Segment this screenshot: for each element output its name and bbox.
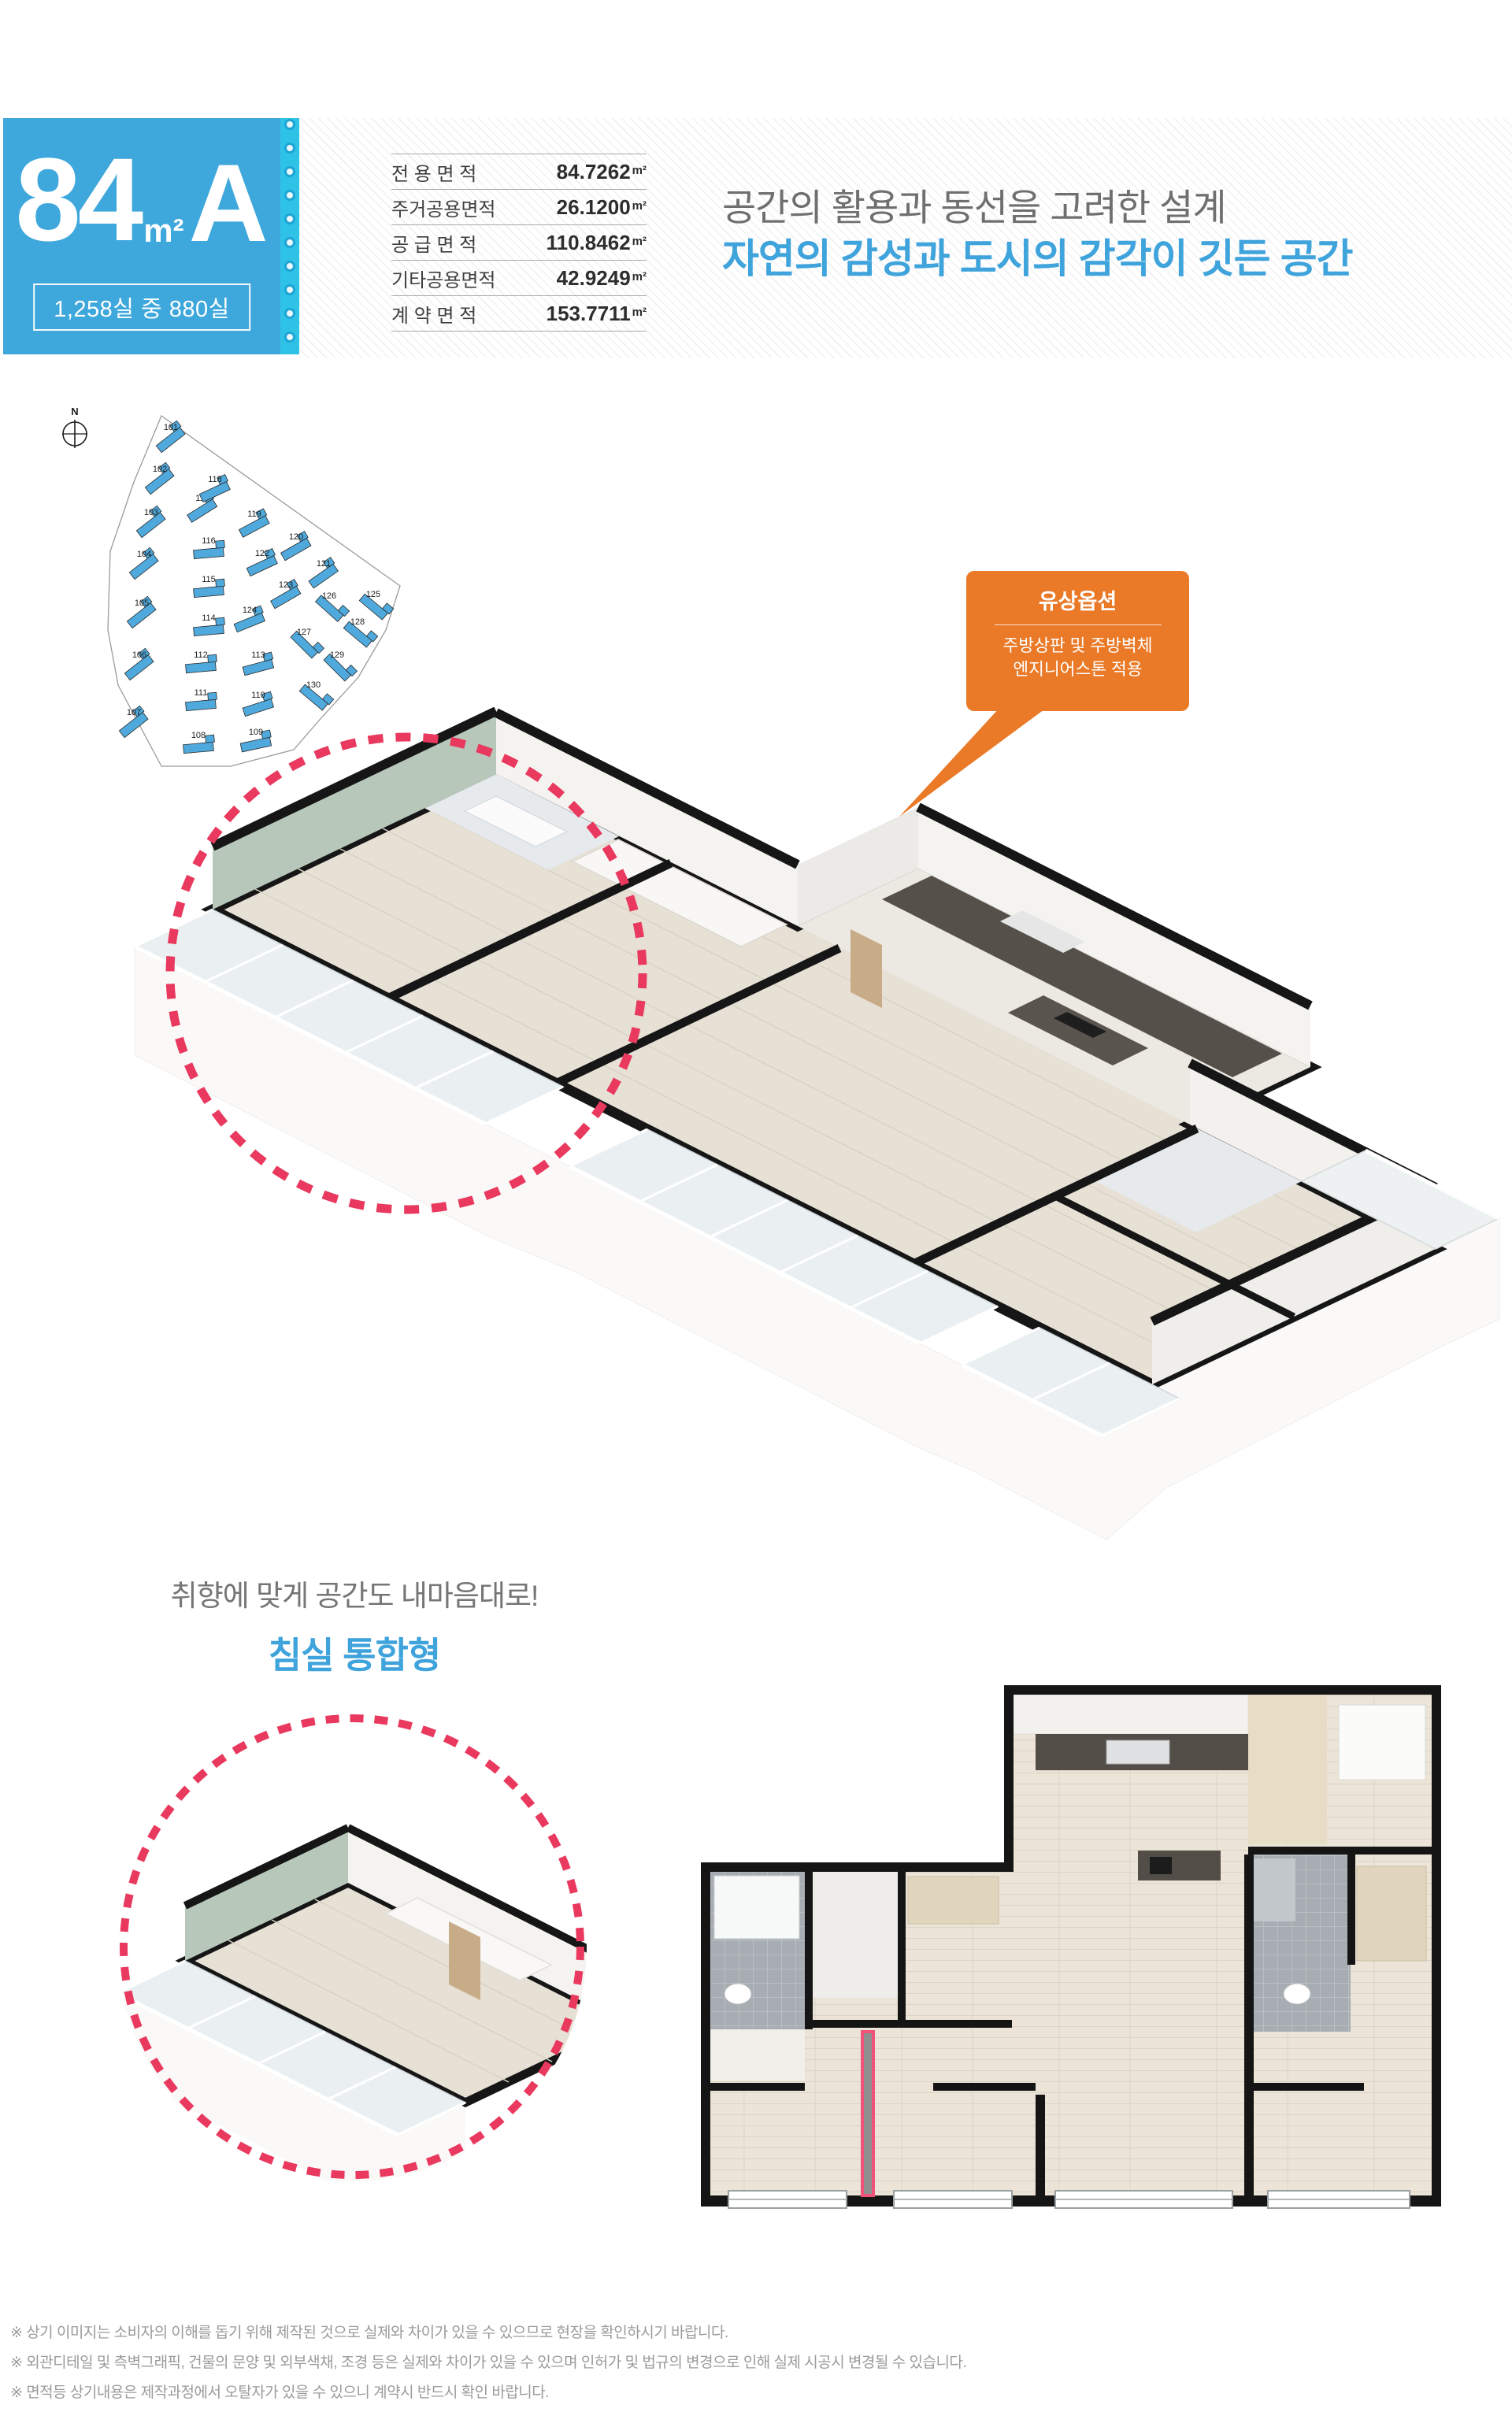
site-building-101 (152, 421, 187, 452)
option-section-heading: 취향에 맞게 공간도 내마음대로! 침실 통합형 (0, 1572, 709, 1679)
site-building-112 (185, 654, 218, 673)
site-building-label: 109 (249, 728, 263, 737)
area-table: 전 용 면 적84.7262m²주거공용면적26.1200m²공 급 면 적11… (391, 154, 647, 332)
site-building-label: 115 (202, 575, 216, 584)
headline-line2: 자연의 감성과 도시의 감각이 깃든 공간 (722, 239, 1353, 279)
kitchen-back-wall (918, 807, 1310, 1067)
site-building-label: 125 (366, 590, 380, 599)
wardrobe-cabinets (573, 839, 787, 947)
site-building-115 (193, 579, 226, 597)
mini-accent-wall-green (185, 1828, 348, 1961)
kitchen-counter (882, 876, 1282, 1077)
site-building-104 (125, 547, 160, 579)
cooktop-2d (1150, 1857, 1172, 1874)
area-label: 주거공용면적 (391, 194, 495, 221)
site-building-label: 129 (330, 650, 344, 660)
site-building-label: 114 (202, 613, 216, 623)
entry-hall (1248, 1695, 1327, 1844)
kitchen-sink (1000, 910, 1085, 953)
removable-wall-highlight (862, 2032, 873, 2195)
site-building-label: 110 (251, 691, 265, 700)
footer-note: ※ 외관디테일 및 측벽그래픽, 건물의 문양 및 외부색채, 조경 등은 실제… (10, 2348, 966, 2378)
site-building-label: 121 (317, 559, 331, 569)
floor-wood (1004, 1695, 1432, 2195)
site-building-label: 102 (153, 465, 167, 474)
main-floorplan-3d (94, 551, 1504, 1583)
mini-floorplan-3d (110, 1701, 598, 2189)
site-building-118 (196, 475, 232, 502)
site-building-label: 117 (195, 494, 209, 503)
dress-room (805, 1872, 902, 1998)
bedroom-right (1351, 1855, 1432, 2095)
svg-text:N: N (71, 406, 78, 417)
bedroom-highlight-circle (170, 737, 643, 1210)
site-boundary (108, 416, 400, 766)
accent-wall-green (213, 711, 496, 910)
footer-notes: ※ 상기 이미지는 소비자의 이해를 돕기 위해 제작된 것으로 실제와 차이가… (10, 2318, 966, 2408)
bathroom-1 (425, 774, 619, 870)
site-building-label: 106 (132, 650, 146, 660)
site-building-129 (324, 649, 357, 682)
apartment-floor (213, 774, 1436, 1384)
toilet-2d (724, 1984, 751, 2004)
mini-wood-door (449, 1921, 480, 2000)
area-unit: m² (632, 235, 647, 248)
site-building-label: 123 (279, 580, 293, 590)
unit-type-letter: A (189, 148, 269, 258)
area-unit: m² (632, 306, 647, 319)
site-building-110 (240, 691, 275, 716)
bathroom-left (710, 1872, 805, 2029)
area-value: 42.9249m² (557, 266, 647, 291)
site-building-label: 126 (322, 591, 336, 601)
walls-2d (701, 1685, 1441, 2207)
site-building-113 (241, 652, 276, 676)
site-building-label: 103 (144, 508, 158, 517)
site-building-127 (291, 626, 324, 659)
site-building-103 (132, 506, 167, 537)
site-building-label: 111 (195, 688, 208, 698)
bed-beige (908, 1877, 999, 1924)
island-2d (1138, 1851, 1221, 1880)
callout-divider (995, 624, 1162, 625)
footer-note: ※ 면적등 상기내용은 제작과정에서 오탈자가 있을 수 있으니 계약시 반드시… (10, 2378, 966, 2408)
mini-balcony (117, 1961, 465, 2135)
area-unit: m² (632, 164, 647, 177)
site-building-label: 130 (306, 680, 321, 690)
mini-podium (117, 1993, 465, 2189)
site-building-111 (185, 692, 218, 710)
headline: 공간의 활용과 동선을 고려한 설계 자연의 감성과 도시의 감각이 깃든 공간 (722, 189, 1353, 279)
unit-type-badge: 84 m² A 1,258실 중 880실 (3, 118, 280, 354)
area-value: 84.7262m² (557, 160, 647, 184)
site-building-128 (343, 616, 377, 648)
site-building-125 (359, 588, 393, 621)
utility (710, 2029, 805, 2081)
floorplan-2d (697, 1685, 1453, 2213)
room-top-right (1327, 1695, 1432, 1856)
site-building-label: 108 (191, 731, 206, 740)
site-building-109 (239, 730, 272, 752)
site-building-label: 118 (208, 475, 222, 484)
paid-option-callout: 유상옵션 주방상판 및 주방벽체 엔지니어스톤 적용 (966, 571, 1189, 711)
floor-planks (255, 787, 1407, 1364)
site-building-124 (232, 606, 267, 632)
site-building-123 (267, 580, 302, 609)
footer-note: ※ 상기 이미지는 소비자의 이해를 돕기 위해 제작된 것으로 실제와 차이가… (10, 2318, 966, 2348)
windows-2d (728, 2191, 1410, 2208)
area-table-row: 공 급 면 적110.8462m² (391, 225, 647, 261)
site-building-120 (277, 532, 313, 561)
site-building-117 (183, 492, 219, 522)
bed-white (1339, 1705, 1425, 1780)
area-label: 계 약 면 적 (391, 300, 476, 328)
wood-door (850, 929, 882, 1008)
area-value: 153.7711m² (547, 302, 647, 326)
area-table-row: 주거공용면적26.1200m² (391, 190, 647, 225)
site-building-label: 122 (255, 549, 269, 558)
mini-wardrobe (386, 1898, 551, 1981)
interior-partitions (387, 863, 1294, 1317)
site-building-label: 101 (164, 423, 178, 432)
site-building-105 (123, 596, 157, 628)
area-label: 전 용 면 적 (391, 158, 476, 186)
callout-tail (899, 707, 1047, 817)
area-unit: m² (632, 199, 647, 213)
site-building-label: 113 (251, 650, 265, 660)
site-building-116 (193, 540, 226, 558)
site-building-102 (141, 462, 176, 494)
bathtub-2d (714, 1876, 799, 1939)
sink-2d (1106, 1740, 1169, 1764)
area-value: 26.1200m² (557, 195, 647, 220)
site-building-106 (120, 648, 155, 680)
unit-availability-box: 1,258실 중 880실 (33, 283, 250, 331)
option-subtitle: 침실 통합형 (0, 1627, 709, 1679)
option-title: 취향에 맞게 공간도 내마음대로! (0, 1572, 709, 1614)
site-building-label: 120 (289, 532, 303, 542)
wave-pattern-strip (280, 118, 299, 354)
site-building-107 (115, 706, 150, 737)
balconies (135, 910, 1499, 1436)
site-building-121 (305, 558, 339, 588)
podium-base (135, 947, 1499, 1540)
kitchen-cabinets (1014, 1695, 1248, 1734)
compass-icon: N (62, 406, 87, 448)
brochure-page: 84 m² A 1,258실 중 880실 전 용 면 적84.7262m²주거… (0, 0, 1512, 2427)
right-front-wall (1152, 1188, 1436, 1384)
back-wall-left (496, 713, 798, 926)
back-wall-right (1190, 1063, 1436, 1249)
site-building-label: 119 (247, 509, 261, 519)
area-table-row: 기타공용면적42.9249m² (391, 261, 647, 296)
small-room (902, 1872, 1004, 1998)
mini-back-wall (348, 1828, 598, 2025)
kitchen-counter-2d (1036, 1734, 1248, 1770)
site-building-label: 124 (243, 606, 257, 615)
site-building-label: 127 (297, 628, 311, 637)
site-building-130 (299, 679, 333, 711)
site-building-label: 107 (127, 708, 141, 717)
kitchen-side-wall (798, 807, 918, 926)
area-label: 기타공용면적 (391, 265, 495, 292)
area-label: 공 급 면 적 (391, 229, 476, 257)
callout-body-line1: 주방상판 및 주방벽체 (966, 634, 1189, 658)
cooktop (1054, 1012, 1106, 1038)
kitchen-island (1008, 995, 1148, 1065)
site-building-108 (183, 735, 216, 753)
site-plan-map: N 10110210310410510610710810911011111211… (47, 406, 417, 799)
site-building-label: 116 (202, 536, 216, 546)
area-value: 110.8462m² (547, 231, 647, 255)
callout-body-line2: 엔지니어스톤 적용 (966, 658, 1189, 681)
area-unit: m² (632, 270, 647, 283)
mini-floor (185, 1883, 598, 2103)
site-building-114 (193, 617, 226, 635)
unit-size-unit: m² (143, 214, 183, 247)
site-building-126 (316, 590, 350, 623)
unit-size: 84 (15, 140, 140, 258)
bathtub (465, 796, 567, 847)
bathroom-2 (1091, 1128, 1302, 1232)
site-building-label: 128 (350, 617, 365, 627)
merged-bedroom-circle (124, 1718, 580, 2175)
unit-type-label: 84 m² A (3, 140, 280, 258)
area-table-row: 계 약 면 적153.7711m² (391, 296, 647, 332)
callout-title: 유상옵션 (966, 571, 1189, 615)
shower (1248, 1858, 1295, 1921)
bathroom-right (1248, 1855, 1351, 2032)
kitchen-floor (798, 869, 1310, 1125)
site-building-122 (243, 549, 279, 576)
site-building-label: 105 (135, 598, 149, 608)
site-building-label: 112 (194, 650, 208, 660)
wall-caps (213, 711, 1436, 1321)
headline-line1: 공간의 활용과 동선을 고려한 설계 (722, 189, 1353, 226)
area-table-row: 전 용 면 적84.7262m² (391, 154, 647, 190)
site-building-119 (235, 509, 271, 537)
site-building-label: 104 (137, 550, 151, 559)
